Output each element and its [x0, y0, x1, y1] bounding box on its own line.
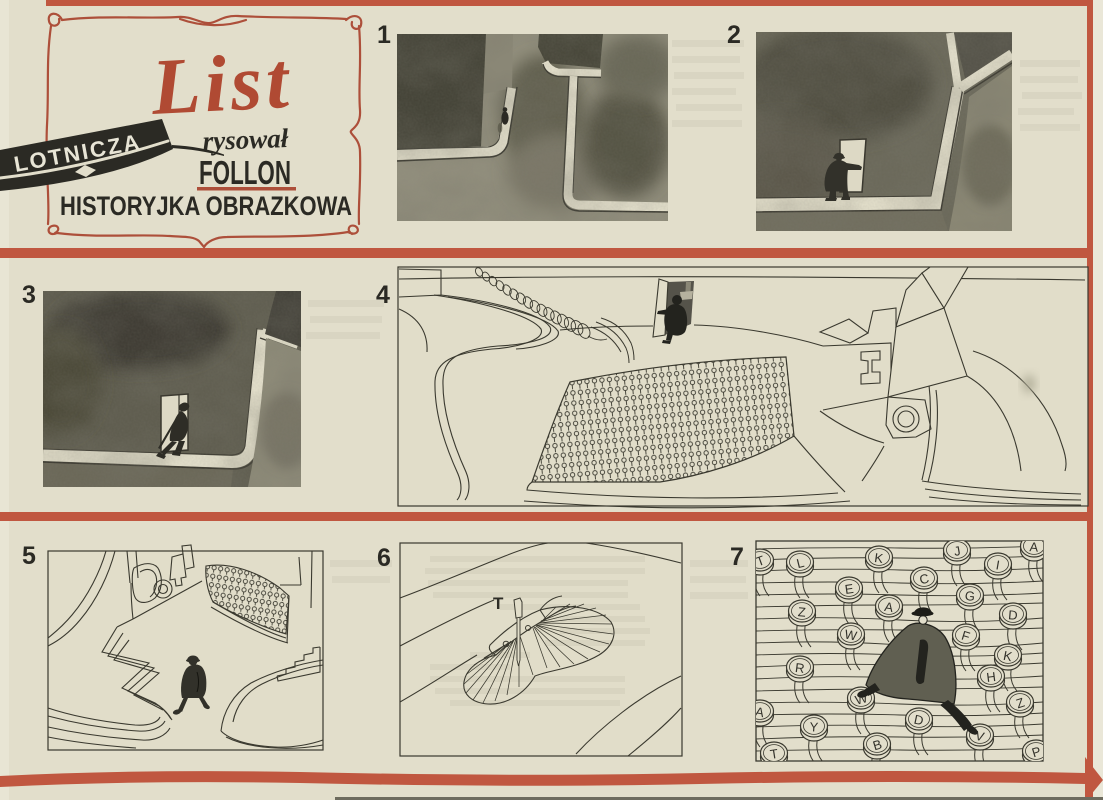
svg-text:List: List	[148, 37, 294, 132]
svg-text:7: 7	[730, 543, 744, 571]
svg-text:6: 6	[377, 544, 391, 572]
svg-text:HISTORYJKA OBRAZKOWA: HISTORYJKA OBRAZKOWA	[60, 191, 352, 221]
svg-text:2: 2	[727, 21, 741, 49]
svg-text:4: 4	[376, 281, 390, 309]
svg-text:D: D	[1008, 607, 1019, 623]
svg-text:5: 5	[22, 542, 36, 570]
svg-text:A: A	[1029, 539, 1039, 555]
svg-text:T: T	[493, 594, 504, 613]
svg-text:R: R	[794, 660, 805, 676]
svg-text:Z: Z	[797, 604, 806, 620]
svg-text:1: 1	[377, 21, 391, 49]
svg-text:rysował: rysował	[202, 123, 289, 156]
svg-text:FOLLON: FOLLON	[199, 154, 291, 191]
svg-text:Y: Y	[809, 719, 819, 735]
svg-text:G: G	[964, 588, 975, 604]
svg-text:H: H	[986, 669, 997, 685]
svg-text:3: 3	[22, 281, 36, 309]
